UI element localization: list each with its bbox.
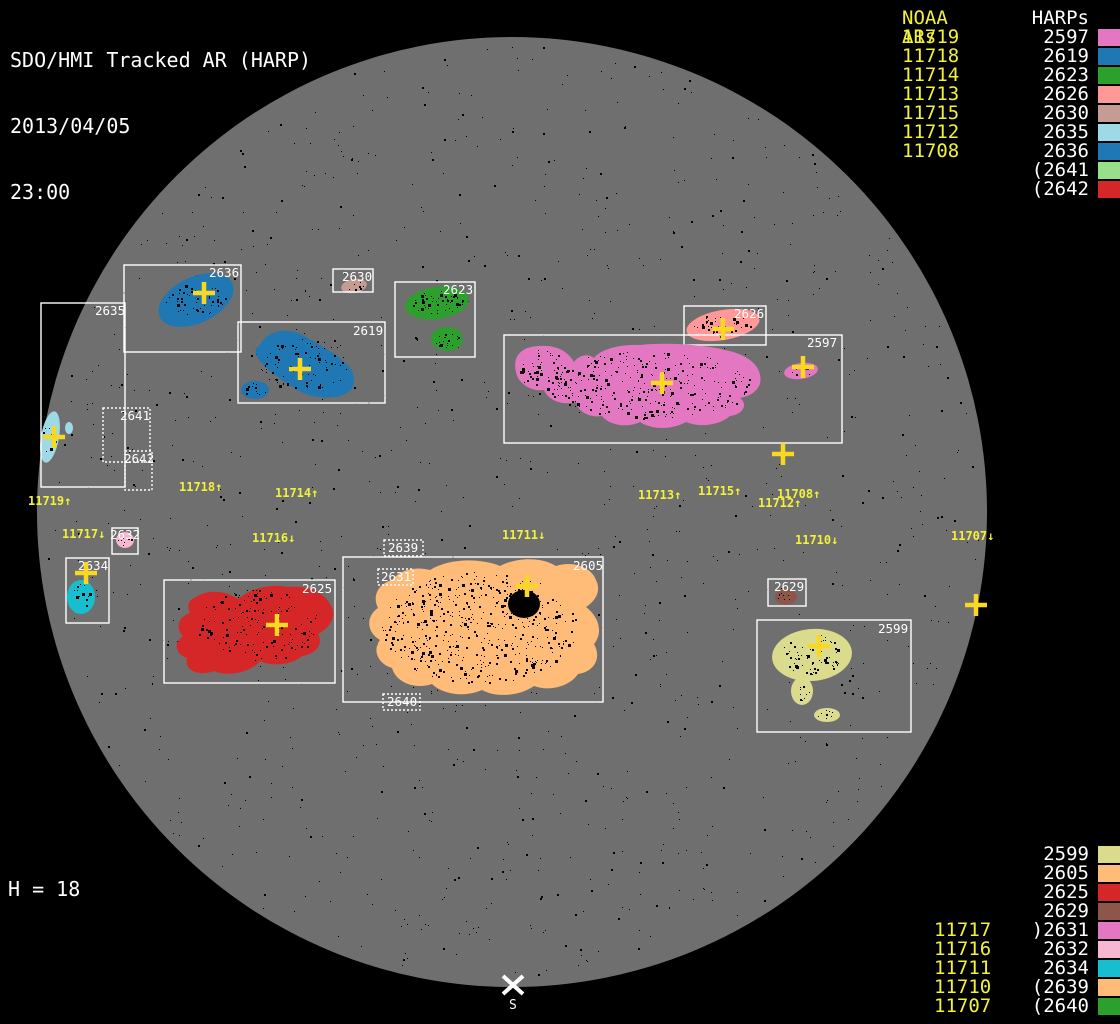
harp-box-label: 2605 <box>573 558 603 573</box>
noaa-ar-label: 11711↓ <box>502 528 545 542</box>
harp-box-label: 2641 <box>120 408 150 423</box>
harp-region-2640: 2640 <box>383 694 420 710</box>
harp-color-swatch <box>1098 998 1120 1015</box>
legend-bottom-rows: 2599 2605 2625 2629 11717 )2631 11716 <box>934 845 1120 1016</box>
harp-box-label: 2635 <box>95 303 125 318</box>
harp-color-swatch <box>1098 846 1120 863</box>
harp-box-label: 2632 <box>110 527 140 542</box>
harp-region-2639: 2639 <box>384 540 423 556</box>
harp-color-swatch <box>1098 162 1120 179</box>
harp-color-swatch <box>1098 48 1120 65</box>
harp-box-label: 2629 <box>774 579 804 594</box>
harp-color-swatch <box>1098 865 1120 882</box>
harp-color-swatch <box>1098 86 1120 103</box>
noaa-ar-label: 11715↑ <box>698 484 741 498</box>
harp-box-label: 2625 <box>302 581 332 596</box>
noaa-ar-label: 11719↑ <box>28 494 71 508</box>
active-region-blob <box>241 381 269 399</box>
harp-color-swatch <box>1098 143 1120 160</box>
legend-top-right: NOAA ARs HARPs 11719 2597 11718 2619 117… <box>902 9 1120 199</box>
harp-color-swatch <box>1098 124 1120 141</box>
noaa-ar-label: 11718↑ <box>179 480 222 494</box>
noaa-ar-number <box>934 883 994 902</box>
harp-color-swatch <box>1098 884 1120 901</box>
noaa-ar-label: 11710↓ <box>795 533 838 547</box>
harp-color-swatch <box>1098 979 1120 996</box>
harp-region-2631: 2631 <box>378 569 413 585</box>
page-title: SDO/HMI Tracked AR (HARP) <box>10 49 311 71</box>
noaa-ar-number <box>934 845 994 864</box>
legend-bottom-right: 2599 2605 2625 2629 11717 )2631 11716 <box>934 845 1120 1016</box>
legend-row: 2599 <box>934 845 1120 864</box>
harp-number: (2642 <box>987 180 1089 199</box>
noaa-ar-label: 11707↓ <box>951 529 994 543</box>
noaa-ar-label: 11712↑ <box>758 496 801 510</box>
harp-box-label: 2597 <box>807 335 837 350</box>
noaa-ar-number: 11708 <box>902 142 987 161</box>
legend-row: 2625 <box>934 883 1120 902</box>
harp-fulldisk-view: 2636263526412642261926302623262625972632… <box>0 0 1120 1024</box>
harp-box-label: 2626 <box>734 306 764 321</box>
harp-box-label: 2623 <box>443 282 473 297</box>
noaa-ar-number: 11707 <box>934 997 994 1016</box>
harp-color-swatch <box>1098 903 1120 920</box>
noaa-ar-label: 11714↑ <box>275 486 318 500</box>
harp-box-label: 2636 <box>209 265 239 280</box>
harp-box-label: 2640 <box>387 694 417 709</box>
noaa-ar-label: 11716↓ <box>252 531 295 545</box>
harp-box-label: 2599 <box>878 621 908 636</box>
legend-row: (2642 <box>902 180 1120 199</box>
legend-row: 2605 <box>934 864 1120 883</box>
active-region-blob <box>508 590 540 618</box>
harp-color-swatch <box>1098 960 1120 977</box>
harp-color-swatch <box>1098 922 1120 939</box>
harp-box-label: 2630 <box>342 269 372 284</box>
harp-box-label: 2639 <box>388 540 418 555</box>
footnotes <box>8 989 38 1024</box>
south-pole-label: S <box>509 998 517 1013</box>
harp-box-label: 2642 <box>124 451 154 466</box>
active-region-blob <box>65 422 73 434</box>
observation-date: 2013/04/05 <box>10 115 311 137</box>
noaa-ar-number <box>902 180 987 199</box>
harp-color-swatch <box>1098 105 1120 122</box>
harp-color-swatch <box>1098 67 1120 84</box>
harp-color-swatch <box>1098 29 1120 46</box>
noaa-ar-label: 11717↓ <box>62 527 105 541</box>
harp-color-swatch <box>1098 181 1120 198</box>
noaa-ar-number <box>934 864 994 883</box>
noaa-ar-number <box>902 161 987 180</box>
harp-box-label: 2631 <box>381 569 411 584</box>
observation-time: 23:00 <box>10 181 311 203</box>
plot-header: SDO/HMI Tracked AR (HARP) 2013/04/05 23:… <box>10 5 311 247</box>
active-region-blob <box>67 580 95 614</box>
harp-color-swatch <box>1098 941 1120 958</box>
legend-row: 11707 (2640 <box>934 997 1120 1016</box>
harp-box-label: 2619 <box>353 323 383 338</box>
noaa-ar-label: 11713↑ <box>638 488 681 502</box>
harp-number: (2640 <box>994 997 1089 1016</box>
harp-count: H = 18 <box>8 877 80 897</box>
legend-top-rows: 11719 2597 11718 2619 11714 2623 11713 2… <box>902 28 1120 199</box>
